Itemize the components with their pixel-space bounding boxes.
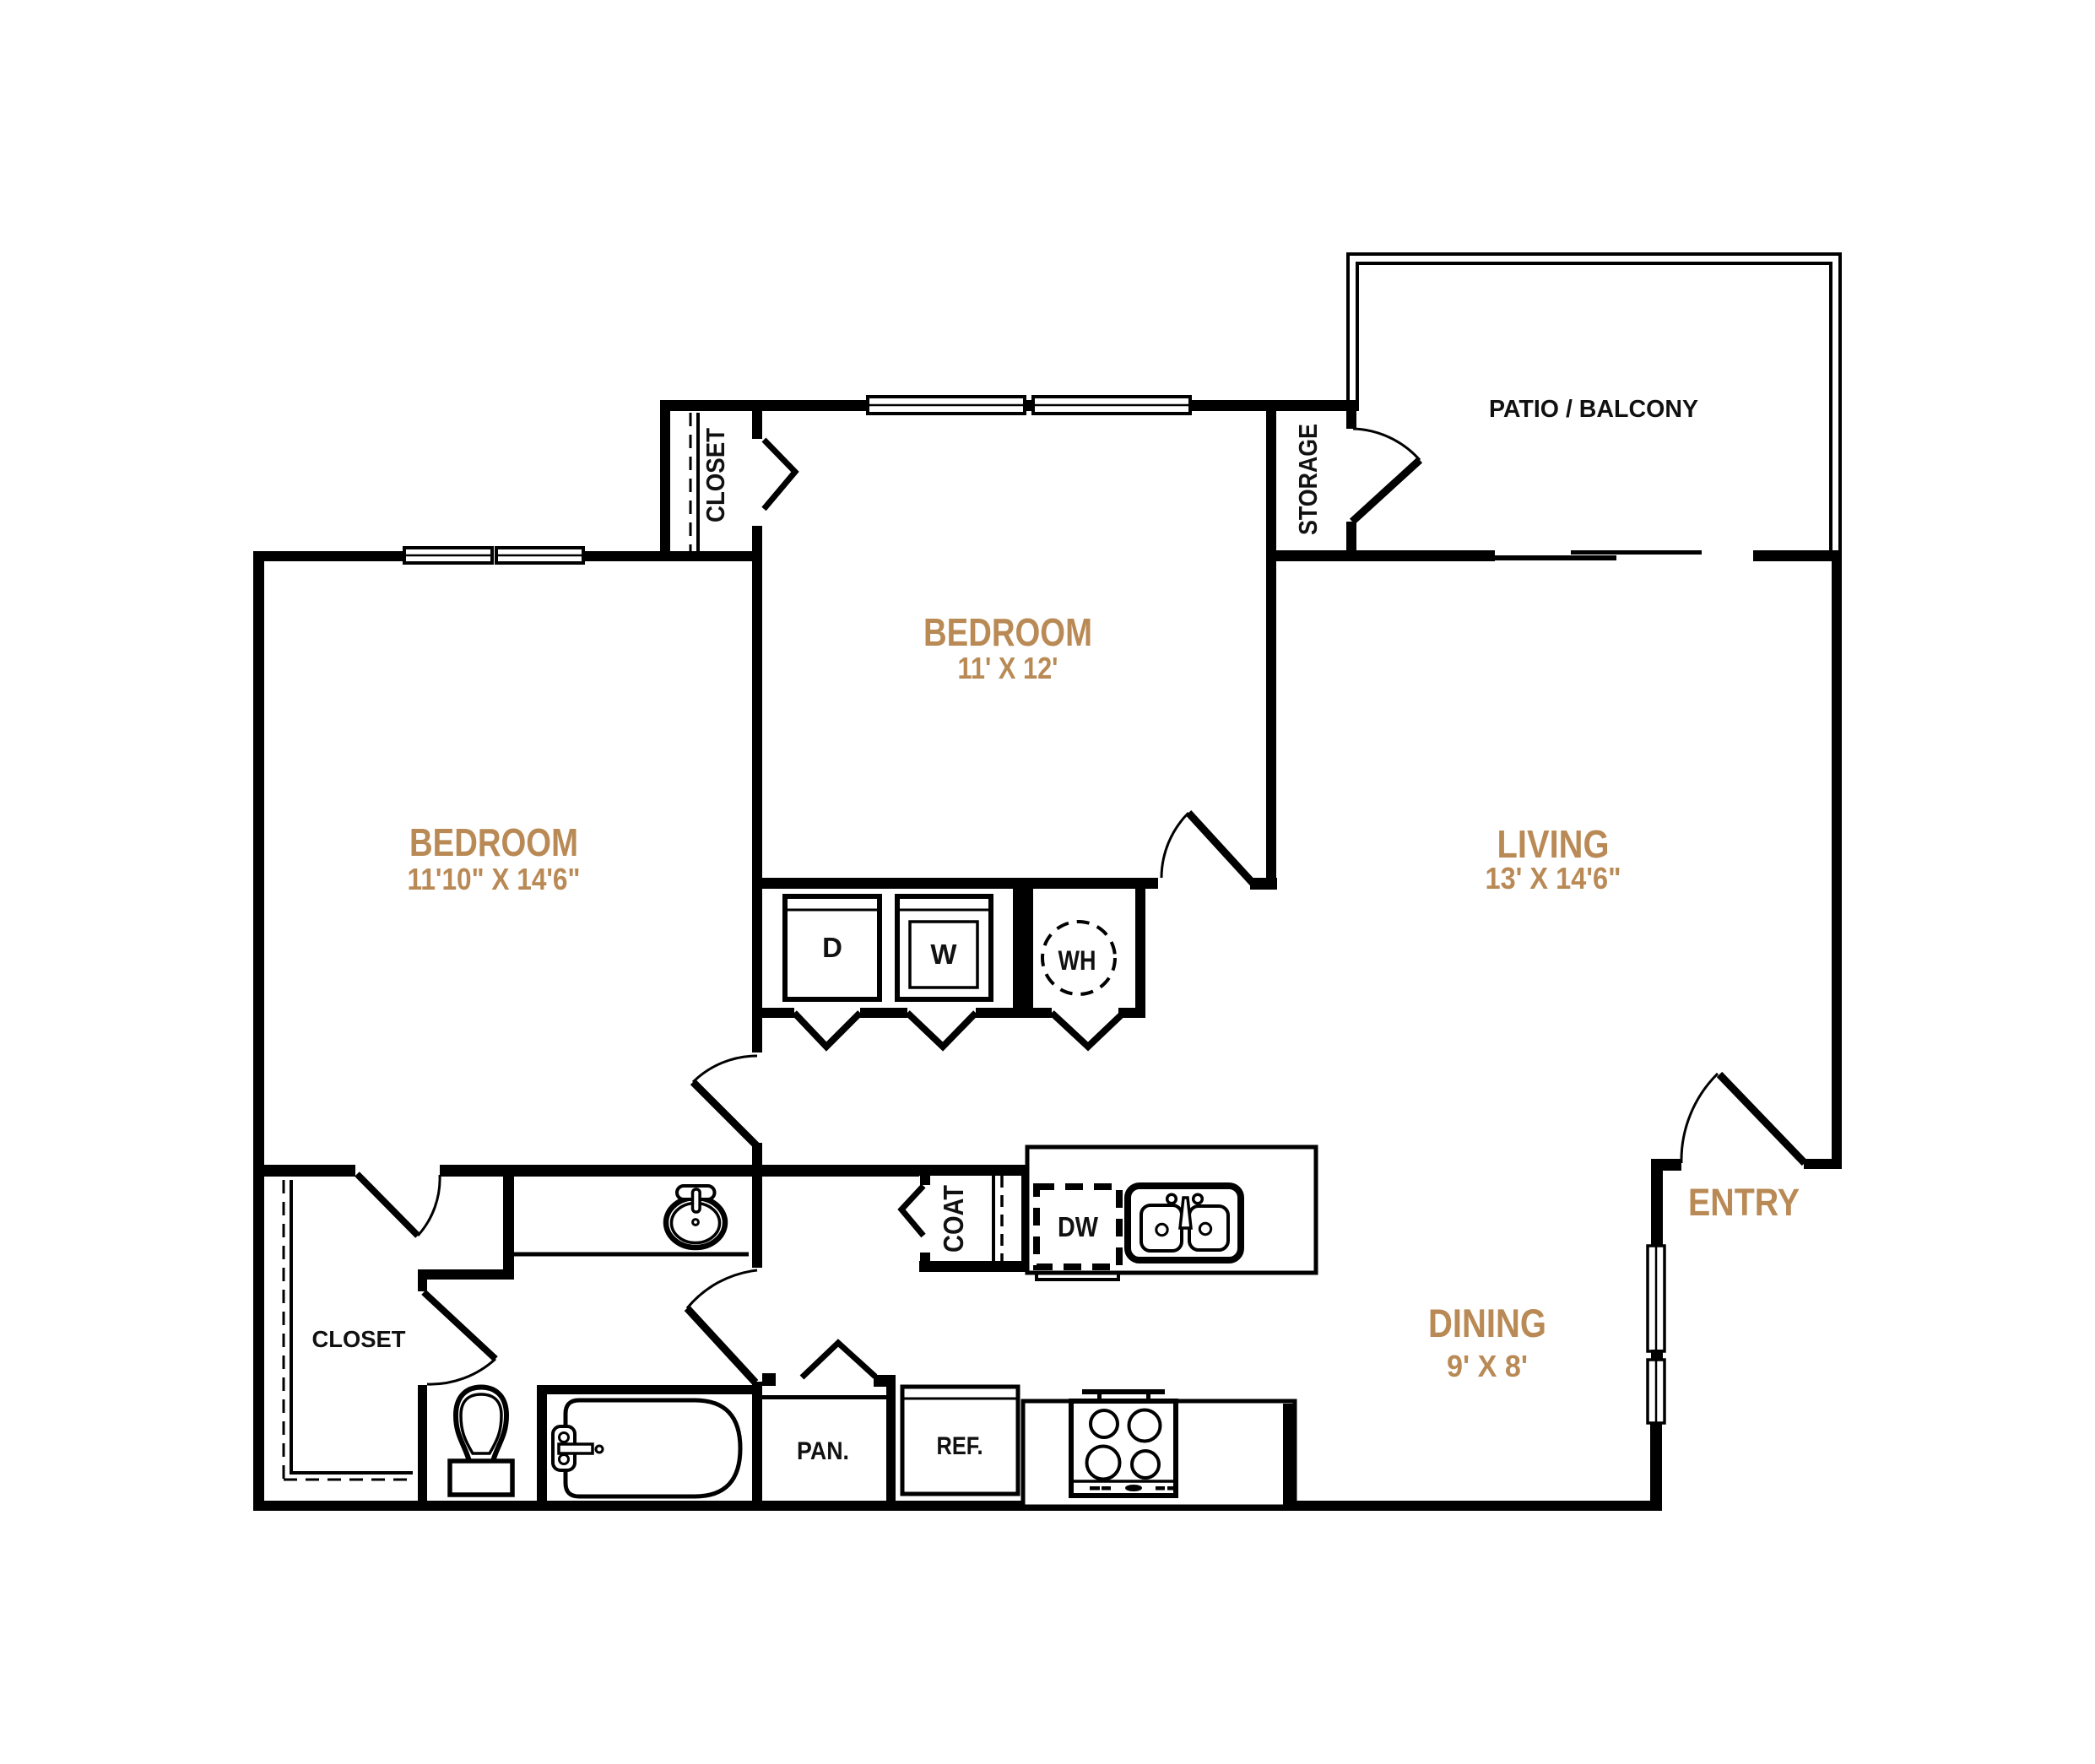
svg-text:DINING: DINING [1428, 1301, 1546, 1345]
svg-text:STORAGE: STORAGE [1293, 424, 1323, 535]
svg-text:11'10" X 14'6": 11'10" X 14'6" [408, 862, 581, 896]
svg-text:BEDROOM: BEDROOM [409, 820, 578, 864]
svg-text:COAT: COAT [938, 1185, 969, 1253]
svg-text:CLOSET: CLOSET [701, 428, 730, 522]
svg-text:PAN.: PAN. [797, 1437, 849, 1465]
svg-text:PATIO / BALCONY: PATIO / BALCONY [1489, 396, 1698, 423]
svg-text:WH: WH [1058, 945, 1096, 976]
svg-text:13' X 14'6": 13' X 14'6" [1486, 861, 1621, 896]
svg-text:W: W [930, 939, 957, 970]
svg-text:LIVING: LIVING [1497, 822, 1610, 866]
svg-text:D: D [822, 932, 842, 963]
svg-text:ENTRY: ENTRY [1688, 1181, 1800, 1224]
svg-text:BEDROOM: BEDROOM [923, 610, 1092, 654]
svg-text:11' X 12': 11' X 12' [958, 651, 1058, 685]
svg-text:CLOSET: CLOSET [312, 1326, 406, 1352]
svg-text:REF.: REF. [937, 1432, 983, 1460]
svg-text:DW: DW [1058, 1211, 1099, 1242]
svg-text:9' X 8': 9' X 8' [1447, 1349, 1528, 1383]
